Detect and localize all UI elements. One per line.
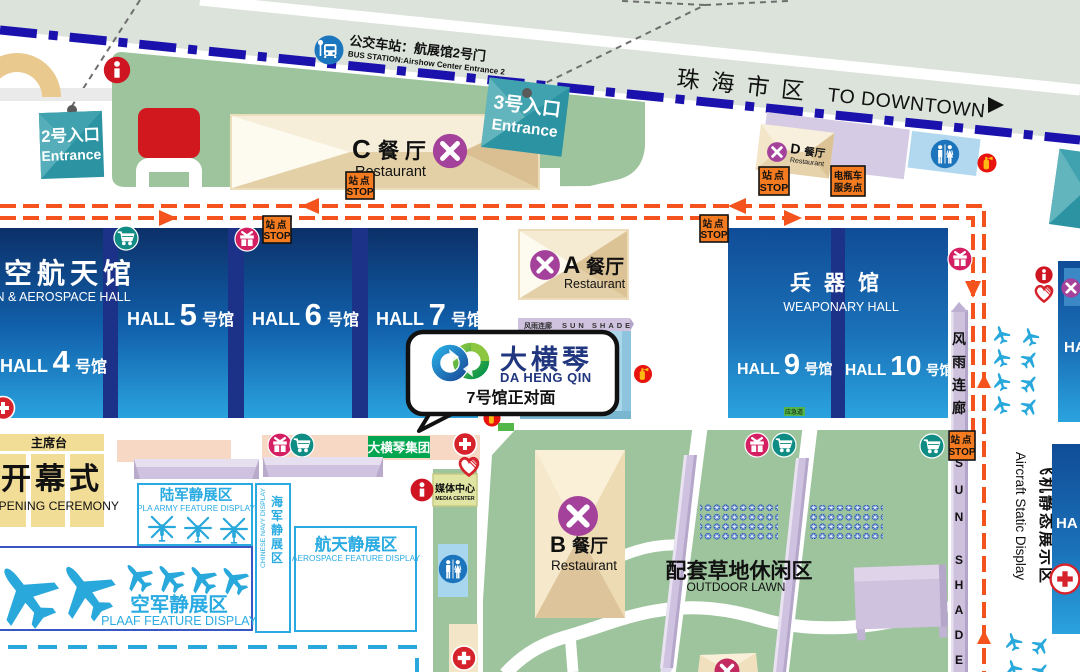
svg-text:STOP: STOP <box>700 230 727 241</box>
svg-text:H: H <box>955 578 964 592</box>
svg-text:WEAPONARY HALL: WEAPONARY HALL <box>783 300 899 314</box>
svg-text:PLA ARMY FEATURE DISPLAY: PLA ARMY FEATURE DISPLAY <box>137 503 256 513</box>
svg-text:SUN SHADE: SUN SHADE <box>562 321 633 330</box>
svg-text:连: 连 <box>952 377 967 393</box>
svg-text:2号入口: 2号入口 <box>41 125 100 146</box>
svg-text:雨: 雨 <box>952 354 966 370</box>
svg-text:站点: 站点 <box>348 175 371 187</box>
svg-text:D: D <box>955 628 964 642</box>
svg-text:A: A <box>955 603 964 617</box>
svg-text:E: E <box>955 653 963 667</box>
svg-text:风雨连廊: 风雨连廊 <box>524 321 552 330</box>
svg-text:MEDIA CENTER: MEDIA CENTER <box>435 496 475 502</box>
svg-text:风: 风 <box>952 331 966 347</box>
svg-text:Aircraft Static Display: Aircraft Static Display <box>1013 452 1028 581</box>
svg-text:静: 静 <box>271 522 283 537</box>
svg-text:Entrance: Entrance <box>41 146 102 164</box>
svg-text:电瓶车: 电瓶车 <box>834 170 863 182</box>
svg-text:OUTDOOR LAWN: OUTDOOR LAWN <box>687 580 786 594</box>
svg-text:STOP: STOP <box>948 447 975 458</box>
svg-text:服务点: 服务点 <box>834 182 863 194</box>
svg-text:站点: 站点 <box>265 219 288 231</box>
svg-text:航天静展区: 航天静展区 <box>315 534 398 554</box>
svg-text:陆军静展区: 陆军静展区 <box>160 486 233 504</box>
svg-text:A 餐厅: A 餐厅 <box>563 252 624 279</box>
svg-text:U: U <box>955 483 964 497</box>
svg-text:展: 展 <box>271 537 283 551</box>
svg-text:海: 海 <box>271 494 283 509</box>
svg-text:应急道: 应急道 <box>785 408 803 416</box>
svg-text:PLAAF FEATURE DISPLAY: PLAAF FEATURE DISPLAY <box>101 614 257 628</box>
svg-text:大横琴集团: 大横琴集团 <box>368 440 431 455</box>
svg-text:开幕式: 开幕式 <box>1 463 103 496</box>
svg-text:媒体中心: 媒体中心 <box>434 482 475 495</box>
svg-text:OPENING CEREMONY: OPENING CEREMONY <box>0 499 119 513</box>
svg-text:S: S <box>955 553 963 567</box>
svg-text:Restaurant: Restaurant <box>551 558 617 573</box>
svg-text:廊: 廊 <box>952 400 966 416</box>
svg-text:兵器馆: 兵器馆 <box>790 271 892 295</box>
svg-text:CHINESE NAVY DISPLAY: CHINESE NAVY DISPLAY <box>260 488 267 569</box>
svg-text:B 餐厅: B 餐厅 <box>550 532 608 557</box>
svg-text:AEROSPACE FEATURE DISPLAY: AEROSPACE FEATURE DISPLAY <box>292 553 421 563</box>
svg-text:STOP: STOP <box>346 187 373 198</box>
svg-text:航空航天馆: 航空航天馆 <box>0 257 136 289</box>
svg-text:DA HENG QIN: DA HENG QIN <box>500 370 592 385</box>
svg-text:Restaurant: Restaurant <box>564 277 626 291</box>
svg-text:空军静展区: 空军静展区 <box>130 593 228 616</box>
svg-text:区: 区 <box>271 551 283 565</box>
svg-text:N: N <box>955 510 964 524</box>
svg-text:站点: 站点 <box>762 169 786 182</box>
svg-text:STOP: STOP <box>760 182 788 194</box>
svg-text:HA: HA <box>1064 339 1080 356</box>
svg-text:STOP: STOP <box>263 231 290 242</box>
svg-text:主席台: 主席台 <box>31 435 67 450</box>
svg-text:站点: 站点 <box>950 434 973 446</box>
svg-text:7号馆正对面: 7号馆正对面 <box>467 388 556 407</box>
svg-text:军: 军 <box>271 508 283 523</box>
svg-text:AVIATION & AEROSPACE HALL: AVIATION & AEROSPACE HALL <box>0 290 131 304</box>
svg-text:站点: 站点 <box>702 218 725 230</box>
svg-text:HA: HA <box>1056 515 1078 532</box>
